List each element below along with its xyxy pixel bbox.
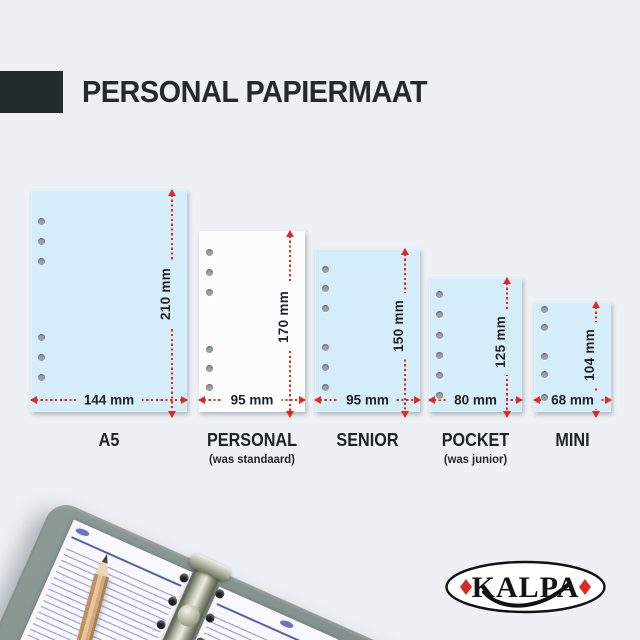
punch-hole-icon: [322, 285, 329, 292]
punch-hole-icon: [38, 374, 45, 381]
arrow-up-icon: [401, 248, 409, 255]
height-dimension-line: 150 mm: [404, 249, 406, 417]
page-title: PERSONAL PAPIERMAAT: [82, 71, 427, 113]
arrow-down-icon: [401, 411, 409, 418]
punch-hole-icon: [38, 354, 45, 361]
punch-hole-icon: [541, 371, 548, 378]
punch-hole-icon: [436, 291, 443, 298]
arrow-down-icon: [503, 411, 511, 418]
title-accent-block: [0, 71, 63, 113]
size-subname: (was junior): [404, 452, 548, 466]
punch-hole-icon: [206, 384, 213, 391]
punch-hole-icon: [38, 334, 45, 341]
height-dimension-line: 170 mm: [289, 231, 291, 417]
punch-hole-icon: [206, 346, 213, 353]
punch-hole-icon: [322, 384, 329, 391]
arrow-right-icon: [516, 396, 523, 404]
height-dimension-label: 104 mm: [583, 322, 603, 388]
organizer-cover: [0, 498, 420, 640]
arrow-down-icon: [168, 411, 176, 418]
paper-sheet: 104 mm 68 mm: [534, 302, 611, 412]
width-dimension-label: 80 mm: [446, 391, 505, 409]
punch-hole-icon: [38, 218, 45, 225]
punch-hole-icon: [541, 394, 548, 401]
width-dimension-line: 95 mm: [315, 399, 420, 401]
height-dimension-label: 125 mm: [494, 309, 514, 375]
arrow-down-icon: [286, 411, 294, 418]
punch-hole-icon: [322, 266, 329, 273]
punch-hole-icon: [38, 238, 45, 245]
width-dimension-line: 144 mm: [31, 399, 187, 401]
brand-wordmark: KALPA: [472, 571, 580, 604]
punch-hole-icon: [322, 305, 329, 312]
width-dimension-line: 95 mm: [199, 399, 305, 401]
page-logo-mark: [75, 527, 90, 538]
arrow-down-icon: [592, 411, 600, 418]
width-dimension-label: 144 mm: [76, 391, 142, 409]
punch-hole-icon: [436, 372, 443, 379]
page-background: PERSONAL PAPIERMAAT 210 mm 144 mm A5 170…: [0, 0, 640, 640]
arrow-up-icon: [503, 277, 511, 284]
paper-sheet: 210 mm 144 mm: [31, 190, 187, 412]
kalpa-logo: KALPA: [444, 560, 607, 614]
punch-hole-icon: [436, 311, 443, 318]
width-dimension-label: 95 mm: [223, 391, 282, 409]
page-logo-mark: [279, 619, 294, 630]
arrow-right-icon: [299, 396, 306, 404]
punch-hole-icon: [541, 306, 548, 313]
punch-hole-icon: [322, 344, 329, 351]
spine-roundel: [174, 601, 203, 630]
height-dimension-label: 170 mm: [277, 284, 297, 350]
punch-hole-icon: [541, 353, 548, 360]
paper-sheet: 170 mm 95 mm: [199, 231, 305, 412]
punch-hole-icon: [436, 352, 443, 359]
punch-hole-icon: [206, 269, 213, 276]
punch-hole-icon: [206, 365, 213, 372]
arrow-left-icon: [428, 396, 435, 404]
arrow-left-icon: [314, 396, 321, 404]
organizer-photo: [0, 468, 640, 640]
size-subname: (was standaard): [174, 452, 330, 466]
arrow-left-icon: [198, 396, 205, 404]
arrow-right-icon: [181, 396, 188, 404]
arrow-right-icon: [605, 396, 612, 404]
punch-hole-icon: [206, 249, 213, 256]
width-dimension-line: 80 mm: [429, 399, 522, 401]
arrow-left-icon: [533, 396, 540, 404]
arrow-up-icon: [168, 189, 176, 196]
punch-hole-icon: [436, 392, 443, 399]
punch-hole-icon: [206, 289, 213, 296]
punch-hole-icon: [38, 258, 45, 265]
height-dimension-label: 210 mm: [159, 261, 179, 327]
punch-hole-icon: [436, 332, 443, 339]
paper-sheet: 150 mm 95 mm: [315, 249, 420, 412]
arrow-right-icon: [414, 396, 421, 404]
size-name: MINI: [511, 430, 634, 451]
height-dimension-line: 125 mm: [506, 278, 508, 417]
width-dimension-label: 68 mm: [543, 391, 602, 409]
size-caption: MINI: [504, 430, 640, 452]
arrow-left-icon: [30, 396, 37, 404]
arrow-up-icon: [592, 301, 600, 308]
spine-knob: [187, 552, 233, 584]
arrow-up-icon: [286, 230, 294, 237]
height-dimension-label: 150 mm: [392, 293, 412, 359]
punch-hole-icon: [322, 364, 329, 371]
paper-sheet: 125 mm 80 mm: [429, 278, 522, 412]
width-dimension-label: 95 mm: [338, 391, 397, 409]
punch-hole-icon: [541, 324, 548, 331]
height-dimension-line: 210 mm: [171, 190, 173, 417]
